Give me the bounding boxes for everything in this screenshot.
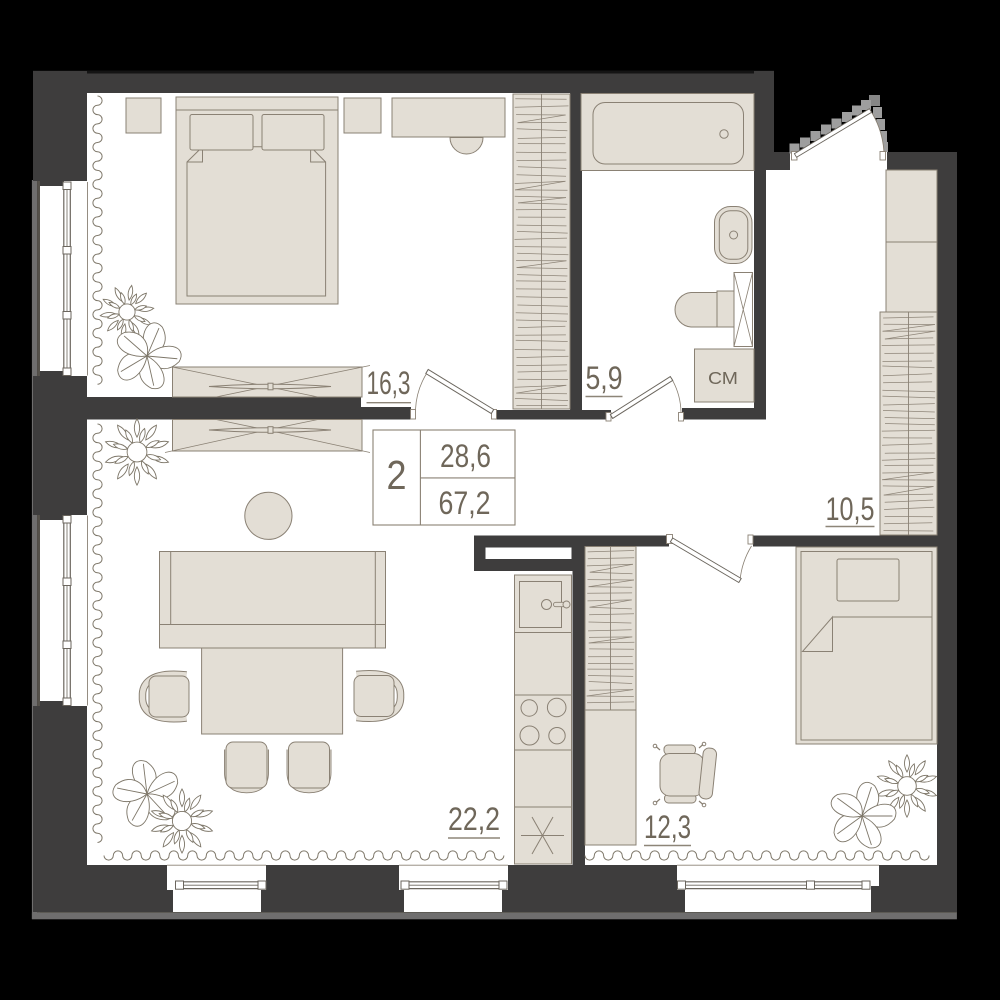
svg-text:16,3: 16,3 [367,365,411,401]
svg-text:28,6: 28,6 [440,438,491,474]
svg-text:СМ: СМ [708,368,738,388]
svg-text:10,5: 10,5 [826,491,875,527]
svg-text:5,9: 5,9 [586,360,623,396]
svg-text:12,3: 12,3 [644,809,691,845]
svg-text:22,2: 22,2 [448,801,500,837]
svg-text:67,2: 67,2 [439,485,491,521]
svg-text:2: 2 [387,452,407,498]
